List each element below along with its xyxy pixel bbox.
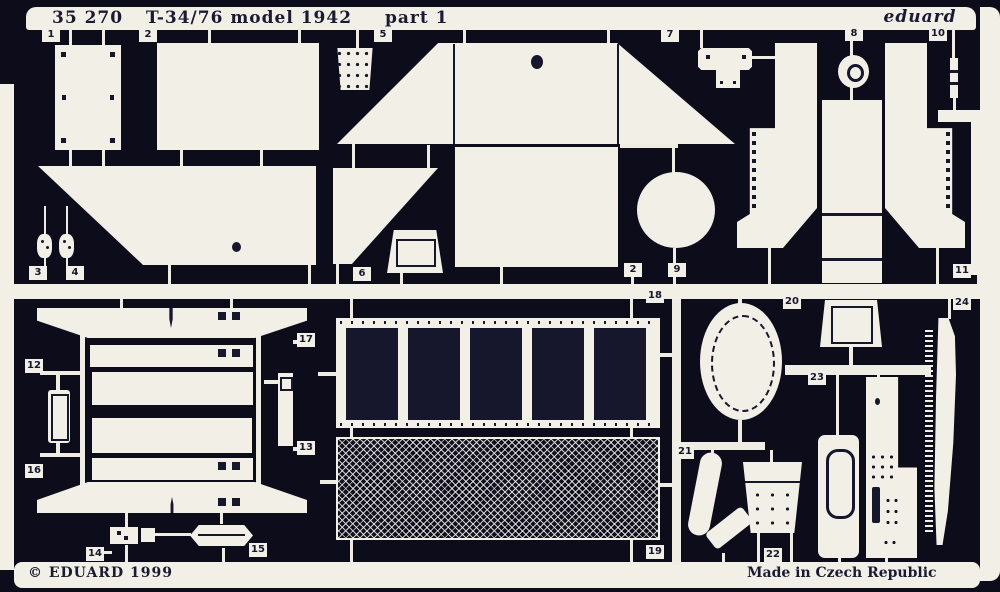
part-6-etch xyxy=(396,239,436,267)
part-13-etch xyxy=(280,377,293,391)
part-number-tab: 22 xyxy=(764,548,782,562)
sheet-name: part 1 xyxy=(385,8,448,28)
part-number-tab: 2 xyxy=(624,263,642,277)
rivet-plate-dots xyxy=(882,538,898,548)
sprue-stem xyxy=(69,28,72,46)
part-number-tab: 3 xyxy=(29,266,47,280)
brand-logo: eduard xyxy=(868,7,972,27)
etch-mark xyxy=(46,246,49,249)
sprue-stem xyxy=(500,267,503,285)
part-number-tab: 12 xyxy=(25,359,43,373)
part-8-hub-ring xyxy=(847,64,864,82)
sprue-stem xyxy=(463,28,466,45)
copyright-text: © EDUARD 1999 xyxy=(28,565,173,581)
part-number-tab: 23 xyxy=(808,371,826,385)
grille-opening xyxy=(532,328,584,420)
etch-slot xyxy=(872,487,880,523)
sprue-stem xyxy=(69,150,72,167)
sprue-stem xyxy=(260,150,263,167)
sprue-stem xyxy=(672,148,675,173)
sprue-stem xyxy=(977,275,980,285)
door-panel-etch xyxy=(826,449,855,519)
sprue-stem xyxy=(936,248,939,285)
part-number-tab: 10 xyxy=(929,27,947,41)
fender-strip-6-wing-l xyxy=(37,482,88,513)
sprue-stem xyxy=(168,265,171,285)
part-number-tab: 11 xyxy=(953,264,971,278)
etch-hole xyxy=(232,462,240,470)
sprue-stem xyxy=(948,299,951,319)
etch-mark xyxy=(61,52,66,57)
part-number-tab: 24 xyxy=(953,296,971,310)
sprue-stem xyxy=(850,86,853,101)
sprue-stem xyxy=(952,28,955,60)
sprue-rail-23 xyxy=(785,365,931,375)
fender-strip-3 xyxy=(92,372,253,405)
part-number-tab: 14 xyxy=(86,547,104,561)
sprue-stem xyxy=(56,375,60,391)
sprue-stem xyxy=(738,420,742,443)
part-number-tab: 7 xyxy=(661,28,679,42)
etch-line xyxy=(198,534,245,536)
part-14-pad xyxy=(141,528,155,542)
part-number-tab: 19 xyxy=(646,545,664,559)
sprue-stem xyxy=(318,372,336,376)
sprue-stem xyxy=(953,96,956,111)
hull-plate xyxy=(455,147,618,267)
grille-opening xyxy=(408,328,460,420)
rivet-plate-dots xyxy=(884,495,900,531)
etch-line xyxy=(453,44,455,144)
sprue-stem xyxy=(40,371,82,375)
fender-strip-5 xyxy=(92,458,253,480)
part-number-tab: 16 xyxy=(25,464,43,478)
etch-mark xyxy=(875,398,880,405)
sprue-stem xyxy=(356,28,359,50)
sheet-title: 35 270 T-34/76 model 1942 part 1 xyxy=(52,8,448,28)
sprue-stem xyxy=(44,256,46,266)
sprue-stem xyxy=(700,28,703,48)
etch-hole xyxy=(531,55,543,69)
sprue-stem xyxy=(66,256,68,266)
part-number-tab: 15 xyxy=(249,543,267,557)
part-19-mesh-screen xyxy=(336,437,660,540)
sprue-rail-right xyxy=(256,312,261,498)
mantlet-right-rivets xyxy=(946,132,950,210)
sprue-stem xyxy=(102,28,105,46)
sprue-stem xyxy=(752,56,776,59)
etch-mark xyxy=(62,95,66,100)
sprue-stem xyxy=(836,375,839,436)
part-24-saw-teeth xyxy=(925,330,933,533)
sprue-stem xyxy=(790,533,793,564)
etch-mark xyxy=(733,81,736,84)
part-23-etch xyxy=(831,306,873,344)
etch-hole xyxy=(232,498,240,506)
etch-mark xyxy=(68,246,71,249)
sprue-stem xyxy=(264,380,279,384)
etch-mark xyxy=(61,138,66,143)
fender-strip-6-wing-r xyxy=(255,482,307,513)
sprue-rail-left xyxy=(80,312,85,498)
grille-opening xyxy=(346,328,398,420)
part-number-tab: 6 xyxy=(353,267,371,281)
catalog-number: 35 270 xyxy=(52,8,123,28)
etch-hole xyxy=(232,349,240,357)
sprue-stem xyxy=(220,513,223,524)
sprue-stem xyxy=(352,143,355,169)
sprue-stem xyxy=(770,450,773,463)
part-7-bracket xyxy=(698,48,752,70)
part-10-strip xyxy=(950,58,958,98)
part-number-tab: 13 xyxy=(297,441,315,455)
sprue-stem xyxy=(222,548,225,564)
part-3-pin-head xyxy=(37,234,52,258)
part-4-pin-head xyxy=(59,234,74,258)
sprue-stem xyxy=(768,248,771,285)
sprue-stem xyxy=(607,28,610,44)
etch-hole xyxy=(218,462,226,470)
etch-mark xyxy=(950,82,958,85)
part-10-bar xyxy=(938,110,982,122)
fender-strip-2 xyxy=(90,345,253,367)
sprue-stem xyxy=(102,150,105,167)
part-number-tab: 20 xyxy=(783,295,801,309)
fender-strip-4 xyxy=(92,418,252,453)
etch-hole xyxy=(218,312,226,320)
part-12-etch xyxy=(51,394,69,441)
sprue-stem xyxy=(125,513,128,528)
sprue-stem xyxy=(336,262,339,285)
grille-rivets-bottom xyxy=(340,423,656,426)
sprue-stem xyxy=(722,553,725,565)
fender-wedge-left xyxy=(38,166,316,265)
frame-left-bar xyxy=(0,84,14,570)
etch-mark xyxy=(706,55,710,59)
grille-opening xyxy=(470,328,522,420)
part-number-tab: 4 xyxy=(66,266,84,280)
etch-hole xyxy=(218,498,226,506)
sprue-stem xyxy=(757,533,760,564)
etch-line xyxy=(617,44,619,144)
subject-name: T-34/76 model 1942 xyxy=(146,8,352,28)
sprue-stem xyxy=(40,453,82,457)
grille-rivets-top xyxy=(340,321,656,324)
part-22-rivets xyxy=(750,488,796,530)
part-number-tab: 18 xyxy=(646,289,664,303)
fender-strip-1-wing-l xyxy=(37,308,88,338)
part-number-tab: 9 xyxy=(668,263,686,277)
etch-mark xyxy=(63,240,66,243)
sprue-stem xyxy=(620,144,678,148)
mantlet-left-slab xyxy=(737,43,817,248)
sprue-stem xyxy=(208,28,211,44)
part-9-disc xyxy=(637,172,715,248)
part-5-pad xyxy=(335,48,375,90)
etch-mark xyxy=(742,55,746,59)
grille-opening xyxy=(594,328,646,420)
sprue-stem xyxy=(320,480,336,484)
part-11-strip xyxy=(971,122,980,275)
etch-mark xyxy=(110,95,114,100)
part-7-bracket-tab xyxy=(716,70,740,88)
sprue-stem xyxy=(155,533,191,536)
sprue-stem xyxy=(350,540,353,564)
mantlet-column xyxy=(822,100,882,283)
sprue-stem xyxy=(400,272,403,285)
etch-mark xyxy=(720,81,723,84)
part-number-tab: 21 xyxy=(676,445,694,459)
part-number-tab: 5 xyxy=(374,28,392,42)
rivet-plate-dots xyxy=(869,452,897,482)
sprue-stem xyxy=(427,145,430,169)
etch-line xyxy=(745,481,800,483)
mantlet-left-rivets xyxy=(752,132,756,210)
etch-mark xyxy=(110,52,115,57)
frame-mid-rail xyxy=(14,284,980,299)
etch-mark xyxy=(950,70,958,73)
origin-text: Made in Czech Republic xyxy=(747,565,937,581)
sprue-stem xyxy=(630,299,633,319)
etch-hole xyxy=(232,312,240,320)
etch-hole xyxy=(232,242,241,252)
sprue-stem xyxy=(180,150,183,167)
etch-mark xyxy=(41,240,44,243)
sprue-stem xyxy=(630,540,633,564)
etch-line xyxy=(822,213,882,216)
sprue-stem xyxy=(125,545,128,564)
sprue-stem xyxy=(350,299,353,319)
part-number-tab: 1 xyxy=(42,28,60,42)
part-number-tab: 17 xyxy=(297,333,315,347)
frame-right-bar xyxy=(980,7,1000,581)
etch-mark xyxy=(117,531,121,535)
part-2-plate xyxy=(157,43,319,150)
photo-etch-fret: 35 270 T-34/76 model 1942 part 1 eduard … xyxy=(0,0,1000,592)
part-20-etch-oval xyxy=(711,315,775,412)
sprue-rail-center xyxy=(672,299,681,565)
sprue-stem xyxy=(298,28,301,44)
etch-mark xyxy=(124,536,128,540)
etch-mark xyxy=(110,138,115,143)
etch-hole xyxy=(218,349,226,357)
part-24-saw-blade xyxy=(929,318,956,545)
part-number-tab: 8 xyxy=(845,27,863,41)
etch-line xyxy=(822,258,882,261)
sprue-stem xyxy=(308,265,311,285)
sprue-stem xyxy=(849,347,853,366)
part-number-tab: 2 xyxy=(139,28,157,42)
